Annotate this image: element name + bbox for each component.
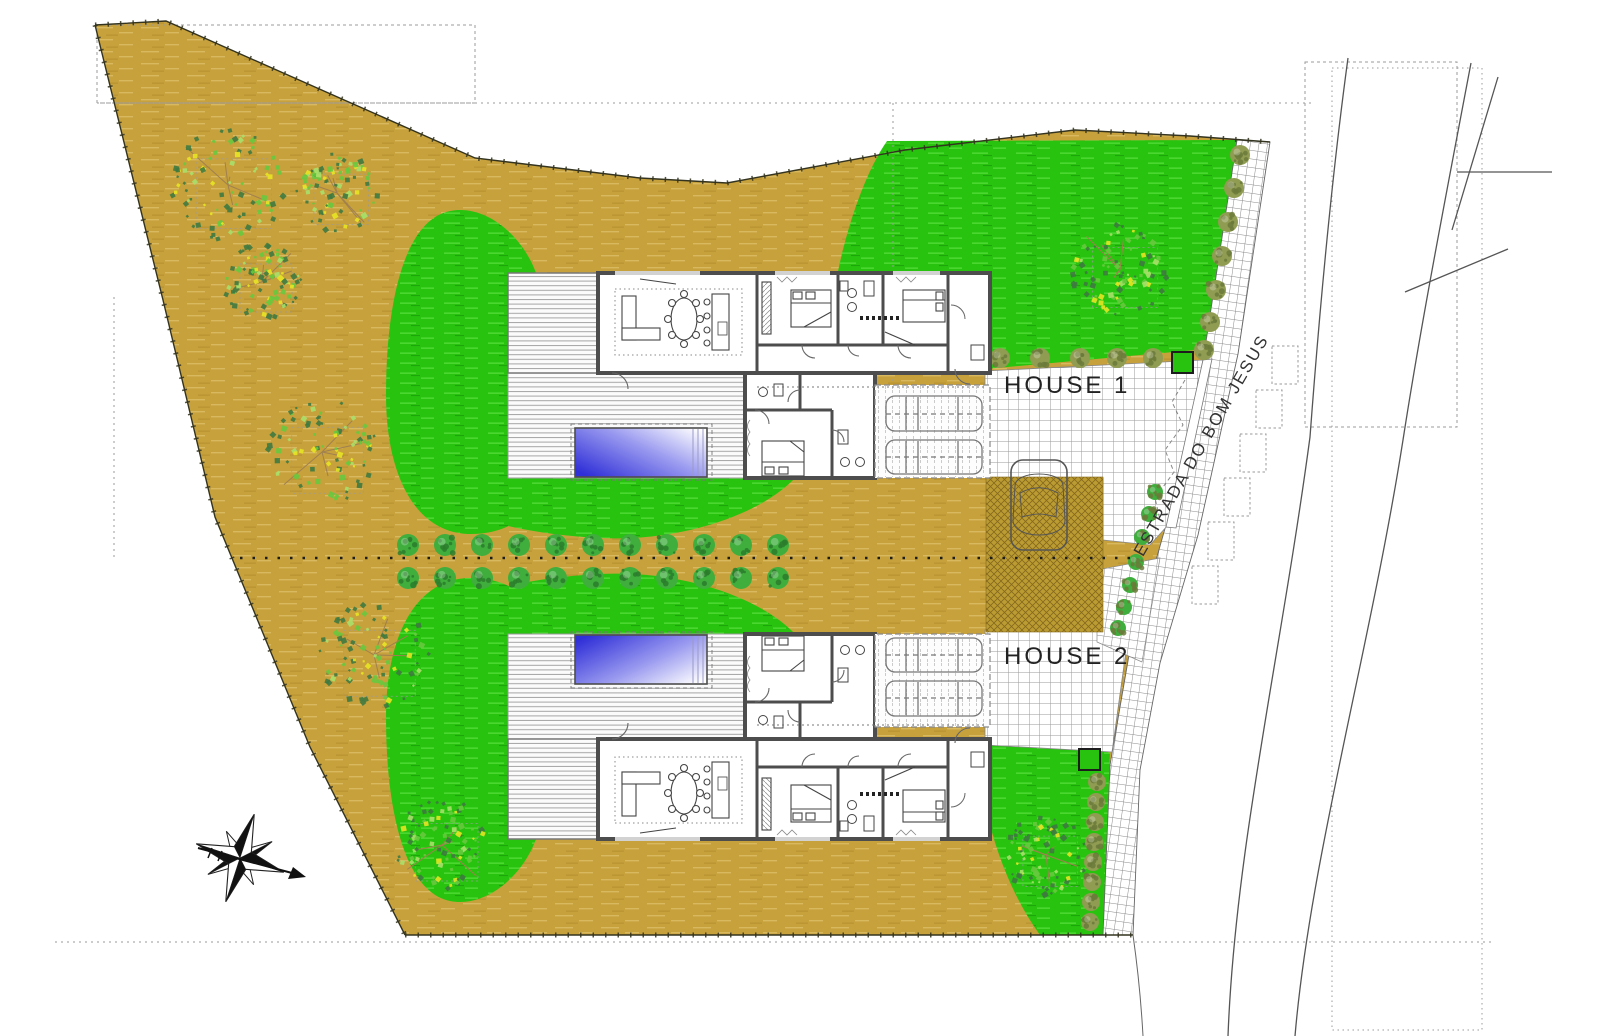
bush-icon <box>693 534 715 556</box>
bush-icon <box>545 567 567 589</box>
house-2-label: HOUSE 2 <box>1004 643 1130 670</box>
bush-icon <box>434 567 456 589</box>
bush-icon <box>1030 348 1050 368</box>
bush-icon <box>434 534 456 556</box>
site-plan-svg: ESTRADA DO BOM JESUS HOUSE 1 HOUSE 2 <box>0 0 1600 1036</box>
bush-icon <box>545 534 567 556</box>
bush-icon <box>693 567 715 589</box>
bush-icon <box>1224 178 1244 198</box>
bush-icon <box>730 567 752 589</box>
bush-icon <box>1230 145 1250 165</box>
bush-icon <box>1081 913 1099 931</box>
bush-icon <box>767 534 789 556</box>
bush-icon <box>1107 348 1127 368</box>
bush-icon <box>508 534 530 556</box>
bush-icon <box>619 534 641 556</box>
shared-driveway <box>986 477 1103 632</box>
planter-box <box>1172 352 1193 373</box>
bush-icon <box>730 534 752 556</box>
house-1-label: HOUSE 1 <box>1004 372 1130 399</box>
bush-icon <box>582 534 604 556</box>
bush-icon <box>397 567 419 589</box>
bush-icon <box>471 567 493 589</box>
bush-icon <box>1070 348 1090 368</box>
bush-icon <box>1082 893 1100 911</box>
bush-icon <box>582 567 604 589</box>
bush-icon <box>508 567 530 589</box>
bush-icon <box>1087 793 1105 811</box>
sidewalk-tail-line <box>1133 935 1143 1036</box>
bush-icon <box>767 567 789 589</box>
compass-rose-icon <box>181 799 306 917</box>
bush-icon <box>1194 340 1214 360</box>
bush-icon <box>656 567 678 589</box>
site-plan-image: ESTRADA DO BOM JESUS HOUSE 1 HOUSE 2 <box>0 0 1600 1036</box>
planter-box <box>1079 749 1100 770</box>
bush-icon <box>619 567 641 589</box>
bush-icon <box>990 348 1010 368</box>
bush-icon <box>1143 348 1163 368</box>
bush-icon <box>1212 246 1232 266</box>
bush-icon <box>1200 312 1220 332</box>
bush-icon <box>471 534 493 556</box>
bush-icon <box>656 534 678 556</box>
street-road-lines <box>1228 58 1552 1036</box>
bush-icon <box>1088 773 1106 791</box>
bush-icon <box>397 534 419 556</box>
bush-icon <box>1086 813 1104 831</box>
